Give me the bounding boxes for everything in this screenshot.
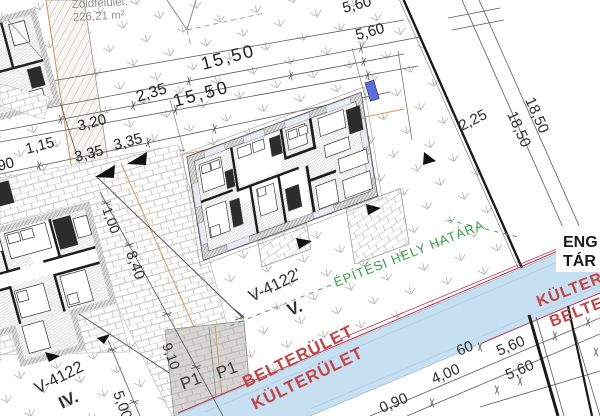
svg-text:ENG: ENG [563, 234, 598, 251]
svg-text:TÁR: TÁR [563, 251, 596, 270]
